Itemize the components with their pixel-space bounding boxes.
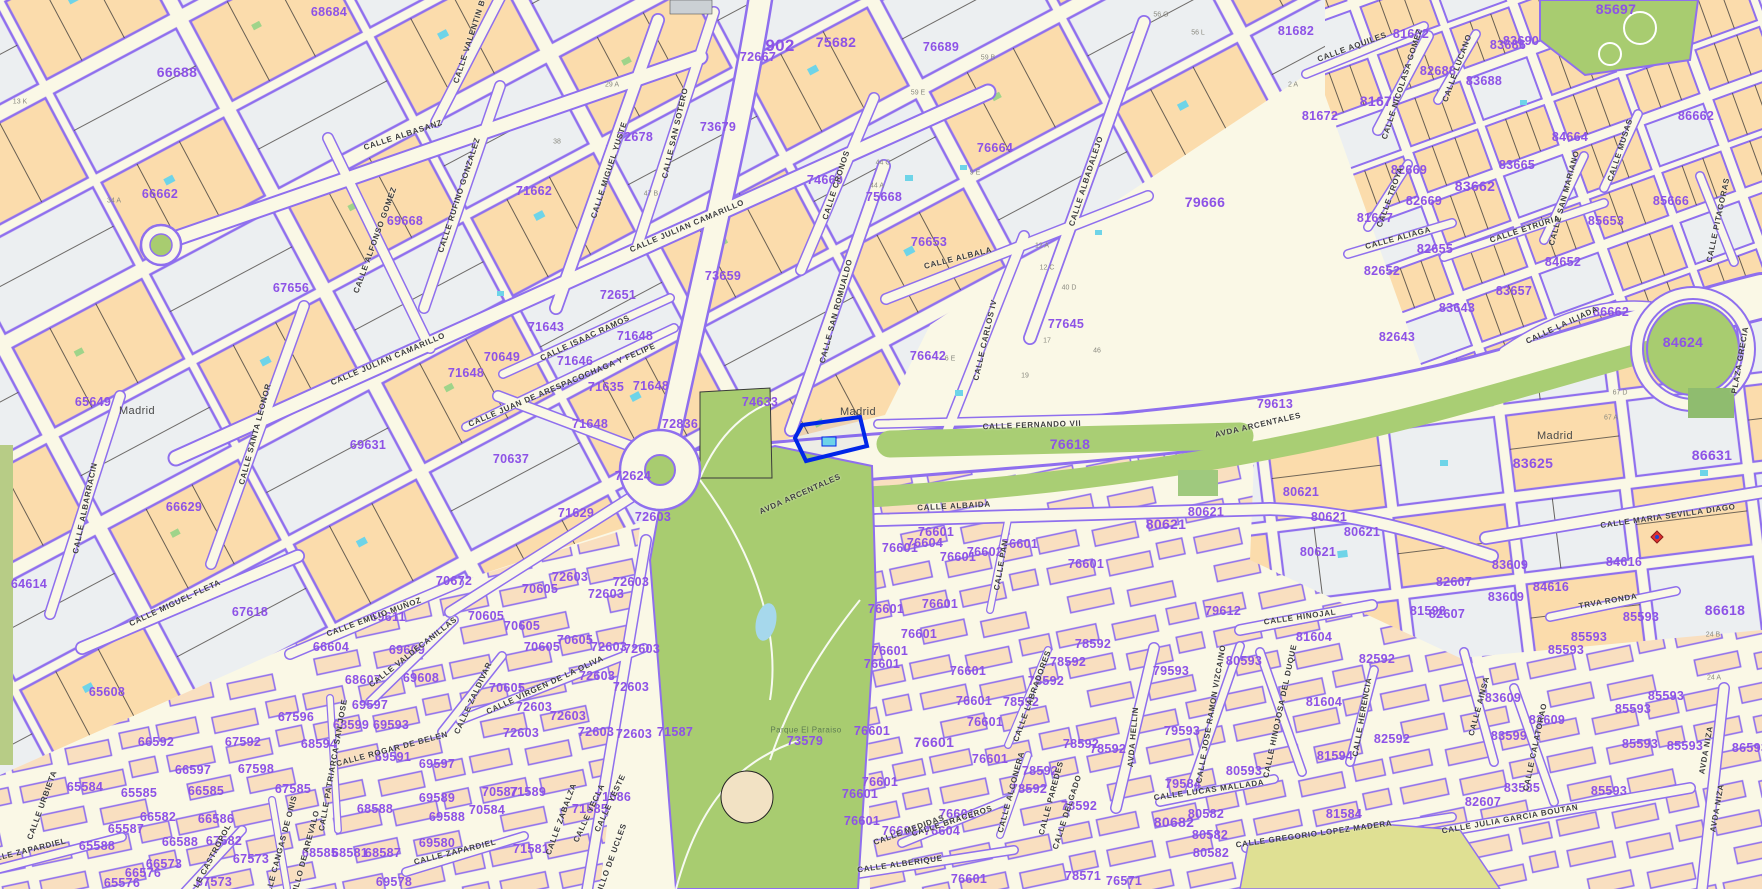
park-plaza-circle — [721, 771, 773, 823]
map-canvas[interactable] — [0, 0, 1762, 889]
map-viewport[interactable]: 6668868684666626966867656656496963166629… — [0, 0, 1762, 889]
park-el-paraiso — [650, 446, 876, 889]
